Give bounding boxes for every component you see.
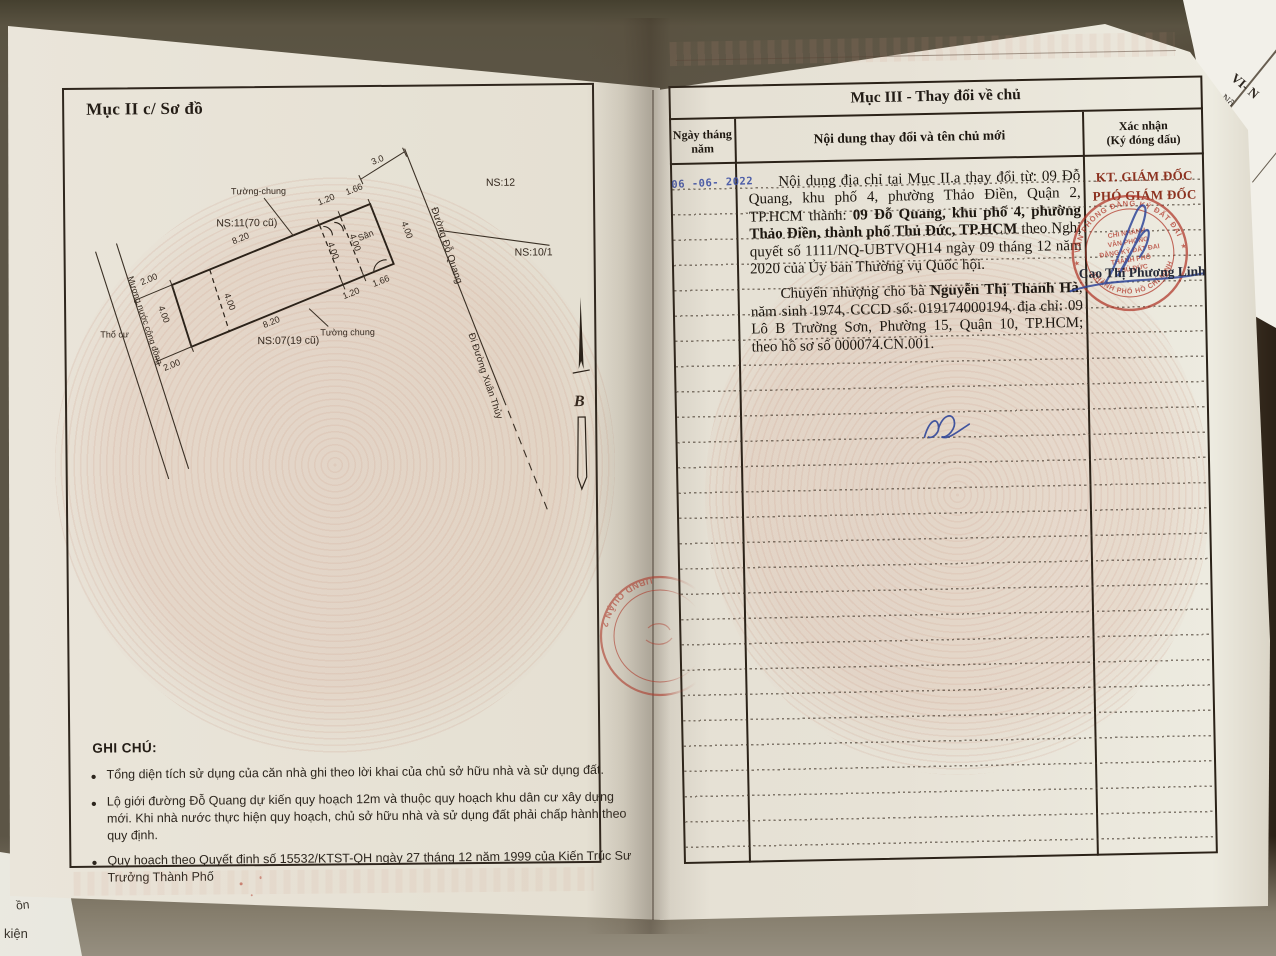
section-title-left: Mục II c/ Sơ đồ — [86, 99, 203, 120]
initial-signature-icon — [919, 410, 980, 447]
ornamental-band — [74, 867, 594, 896]
dimension-label: 1.20 — [316, 192, 336, 208]
dimension-label: 3.0 — [370, 153, 385, 167]
scanned-certificate-photo: VI- N Nộ ồn kiện Mục II c/ Sơ đồ — [0, 0, 1276, 956]
drain-label: Mương nước cộng đồng — [126, 275, 165, 366]
column-header-confirm: Xác nhận (Ký đóng dấu) — [1083, 109, 1204, 154]
notes-block: GHI CHÚ: ● Tổng diện tích sử dụng của că… — [90, 735, 635, 887]
spine-stamp-text: UBND QUẬN 2 — [600, 575, 654, 629]
street-label: Đường Đỗ Quang — [428, 205, 466, 285]
street-label: Đi Đường Xuân Thủy — [466, 332, 505, 421]
ink-speckle — [260, 876, 262, 879]
header-text: Ngày tháng — [669, 126, 735, 141]
shared-wall-label: Tường chung — [320, 327, 375, 338]
dimension-label: 1.66 — [371, 273, 391, 289]
cadastral-sketch: B NS:11(70 cũ) NS:07(19 cũ) NS:12 NS:10/… — [70, 125, 614, 570]
signer-name: Cao Thị Phương Linh — [1078, 263, 1206, 282]
north-letter: B — [573, 393, 585, 410]
entry-paragraph-transfer: Chuyển nhượng cho bà Nguyễn Thị Thanh Hà… — [750, 280, 1083, 356]
ink-speckle — [251, 894, 253, 896]
spine-red-stamp: UBND QUẬN 2 — [590, 566, 730, 706]
shared-wall-label: Tường-chung — [231, 186, 286, 197]
note-text: Tổng diện tích sử dụng của căn nhà ghi t… — [106, 762, 604, 786]
dimension-label: 4.00 — [326, 241, 342, 261]
entry-text-bold: Nguyễn Thị Thanh Hà — [930, 280, 1079, 299]
dimension-label: 4.00 — [156, 304, 172, 324]
entry-paragraph-address-change: Nội dung địa chỉ tại Mục II.a thay đổi t… — [748, 168, 1082, 279]
parcel-outline — [171, 204, 394, 347]
spine-stamp-emblem — [646, 624, 672, 645]
ink-speckle — [240, 882, 243, 885]
entry-text: Chuyển nhượng cho bà — [780, 283, 930, 302]
svg-text:UBND QUẬN 2: UBND QUẬN 2 — [600, 575, 654, 629]
change-entry-text: Nội dung địa chỉ tại Mục II.a thay đổi t… — [748, 168, 1084, 357]
neighbor-label: NS:11(70 cũ) — [216, 217, 277, 230]
column-header-date: Ngày tháng năm — [669, 119, 736, 163]
right-page-table: Mục III - Thay đổi về chủ Ngày tháng năm… — [668, 75, 1218, 864]
note-text: Lộ giới đường Đỗ Quang dự kiến quy hoạch… — [107, 789, 635, 845]
neighbor-label: NS:10/1 — [515, 246, 553, 258]
bullet-icon: ● — [91, 794, 107, 845]
dimension-label: 1.66 — [344, 181, 364, 197]
land-type-label: Thổ cư — [100, 329, 129, 339]
dimension-label: 4.00 — [222, 292, 238, 312]
spine-crease-line — [652, 90, 654, 920]
note-item: ● Lộ giới đường Đỗ Quang dự kiến quy hoạ… — [91, 789, 635, 845]
neighbor-label: NS:12 — [486, 177, 515, 189]
dimension-label: 2.00 — [139, 271, 159, 287]
column-header-content: Nội dung thay đổi và tên chủ mới — [735, 112, 1084, 162]
note-item: ● Tổng diện tích sử dụng của căn nhà ghi… — [90, 762, 634, 786]
dimension-label: 8.20 — [230, 230, 250, 246]
header-text: Nội dung thay đổi và tên chủ mới — [735, 125, 1083, 148]
header-text: năm — [669, 140, 735, 155]
bullet-icon: ● — [90, 767, 106, 786]
north-arrow-icon: B — [572, 297, 591, 489]
dimension-label: 4.00 — [399, 220, 415, 240]
header-text: (Ký đóng dấu) — [1083, 131, 1203, 147]
neighbor-label: NS:07(19 cũ) — [257, 335, 319, 348]
interior-partition-lines — [209, 216, 364, 331]
